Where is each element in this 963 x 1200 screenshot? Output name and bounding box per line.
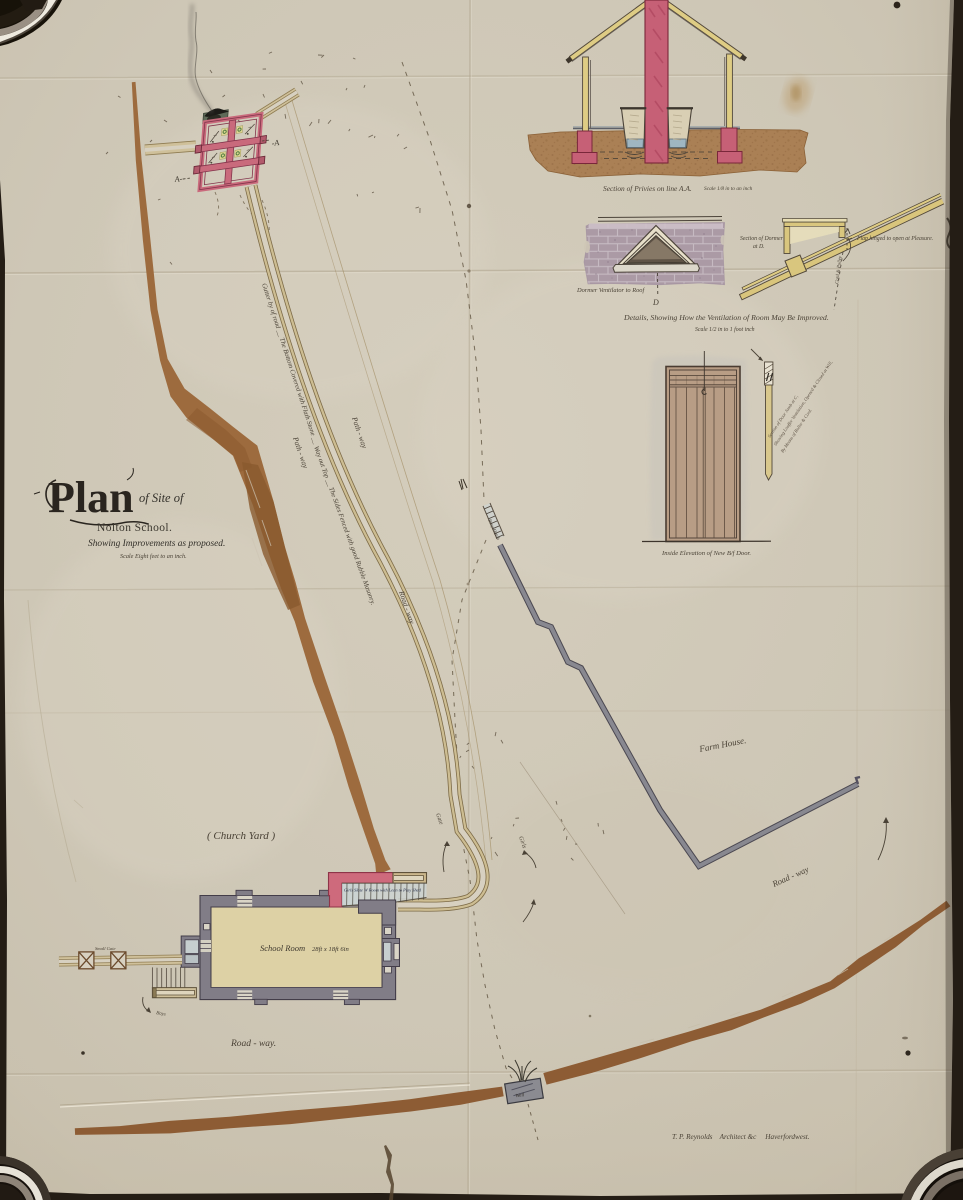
svg-text:Plan: Plan: [48, 473, 134, 522]
svg-text:Details, Showing How the Venti: Details, Showing How the Ventilation of …: [623, 313, 829, 322]
svg-text:( Church Yard ): ( Church Yard ): [207, 830, 275, 842]
svg-text:D: D: [652, 298, 659, 307]
svg-text:Scale 1/8 in to an inch: Scale 1/8 in to an inch: [704, 186, 753, 192]
svg-text:28ft x 18ft 6in: 28ft x 18ft 6in: [312, 946, 350, 953]
svg-text:Section of Dormer: Section of Dormer: [740, 235, 784, 242]
svg-text:T. P. Reynolds Architect &c: T. P. Reynolds Architect &c Haverfordwes…: [672, 1133, 810, 1141]
svg-text:Scale Eight feet to an in: Scale Eight feet to an inch.: [120, 553, 187, 560]
svg-text:Nolton School.: Nolton School.: [97, 522, 172, 534]
svg-text:at D.: at D.: [753, 244, 765, 250]
svg-text:Dormer Ventilator to Roof: Dormer Ventilator to Roof: [576, 287, 645, 294]
svg-text:Flap hinged to open at Pleasur: Flap hinged to open at Pleasure.: [856, 236, 933, 242]
svg-text:School Room: School Room: [260, 943, 305, 953]
svg-text:Inside Elevation of New B/f: Inside Elevation of New B/f Door.: [661, 550, 751, 557]
svg-text:Road - way.: Road - way.: [230, 1039, 276, 1049]
svg-text:Small Gate: Small Gate: [95, 946, 116, 951]
svg-text:of Site of: of Site of: [139, 491, 185, 505]
svg-text:-A: -A: [271, 138, 280, 148]
svg-text:Scale 1/2 in to 1 foot inch: Scale 1/2 in to 1 foot inch: [695, 326, 755, 333]
svg-text:Section of Privies on line: Section of Privies on line A.A.: [603, 184, 692, 193]
svg-text:Girls Slate W Room with Lean t: Girls Slate W Room with Lean to Play She…: [344, 888, 422, 893]
svg-text:Showing Improvements as pro: Showing Improvements as proposed.: [88, 539, 225, 549]
